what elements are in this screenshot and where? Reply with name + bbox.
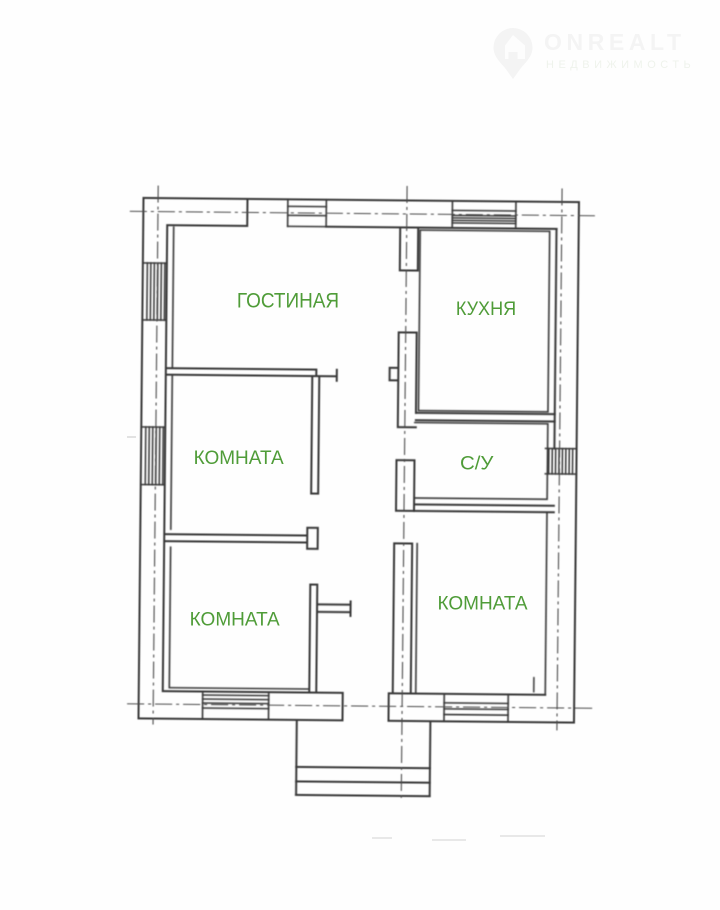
svg-text:КУХНЯ: КУХНЯ	[456, 297, 516, 319]
svg-text:НЕДВИЖИМОСТЬ: НЕДВИЖИМОСТЬ	[546, 59, 695, 71]
svg-text:КОМНАТА: КОМНАТА	[190, 609, 280, 630]
svg-text:ГОСТИНАЯ: ГОСТИНАЯ	[237, 289, 339, 312]
svg-text:С/У: С/У	[460, 453, 494, 474]
svg-text:КОМНАТА: КОМНАТА	[194, 448, 284, 469]
svg-text:КОМНАТА: КОМНАТА	[437, 593, 527, 614]
svg-text:ONREALT: ONREALT	[544, 29, 686, 55]
